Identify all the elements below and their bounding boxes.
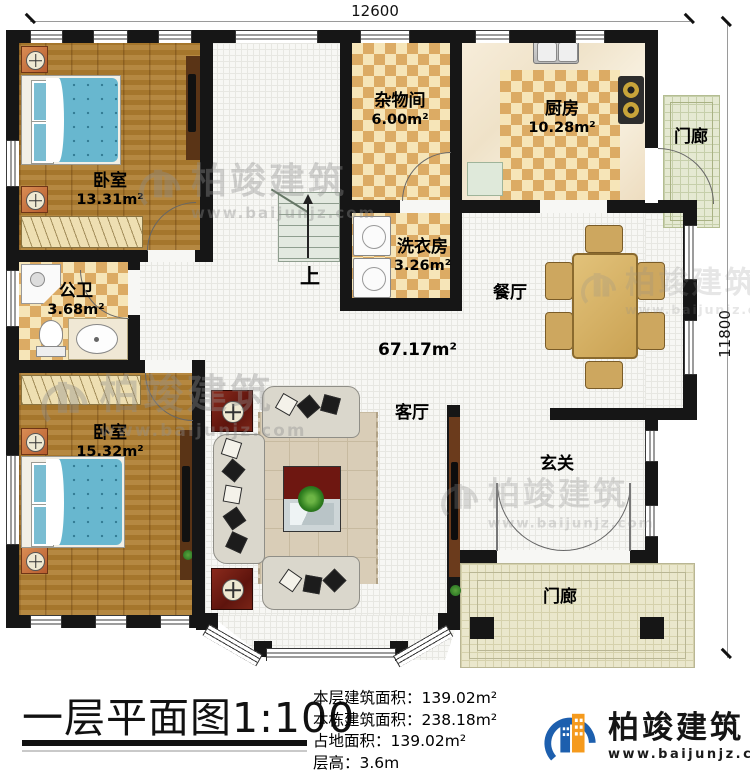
room-label-living: 客厅 [382,404,442,424]
dining-chair [545,262,573,300]
window [684,320,697,375]
sofa-pillow [303,575,323,595]
lamp-icon [26,191,45,210]
porch-column [470,617,494,639]
bed-duvet-fold [46,78,64,162]
room-label-storage: 杂物间 6.00m² [350,92,450,128]
door-leaf [629,483,631,551]
room-name: 洗衣房 [370,238,475,258]
room-name: 公卫 [30,282,122,302]
sofa-pillow [223,485,243,505]
toilet-tank [36,346,66,357]
room-area: 13.31m² [55,192,165,209]
wall [192,373,205,628]
door-opening [497,550,630,563]
window [6,140,19,187]
company-logo-icon [542,706,600,768]
lamp-icon [26,433,45,452]
company-name: 柏竣建筑 [608,713,750,744]
stairs-arrowhead-icon [303,194,313,204]
door-opening [145,360,192,373]
wardrobe [21,216,143,248]
kitchen-cabinet [467,162,503,196]
bay-window [266,648,396,661]
plant-icon [298,486,324,512]
info-line: 层高：3.6m [313,753,497,775]
plant-icon [450,585,461,596]
window [575,30,605,43]
plan-info: 本层建筑面积：139.02m² 本栋建筑面积：238.18m² 占地面积：139… [313,688,497,774]
burner-icon [623,82,639,98]
room-label-living-area: 67.17m² [370,341,465,361]
dining-chair [585,361,623,389]
room-label-bedroom-bottom: 卧室 15.32m² [55,424,165,460]
sink-basin [558,42,578,62]
plan-title: 一层平面图1:100 [22,684,355,744]
monitor [188,74,196,132]
room-name: 厨房 [512,100,612,120]
window [360,30,410,43]
dimension-label-right: 11800 [716,299,734,369]
wall [340,213,352,311]
company-url: www.baijunjz.com [608,747,750,762]
dimension-label-top: 12600 [330,2,420,20]
stairs-up-label: 上 [296,265,324,288]
dining-chair [585,225,623,253]
sink-basin [537,42,557,62]
room-label-dining: 餐厅 [480,284,540,304]
room-label-kitchen: 厨房 10.28m² [512,100,612,136]
info-line: 占地面积：139.02m² [313,731,497,753]
dimension-tick [25,13,36,24]
lamp-icon [26,552,45,571]
lamp-icon [222,579,244,601]
title-underline-thick [22,740,307,746]
lamp-icon [222,401,244,423]
end-table [211,568,253,610]
room-label-bathroom: 公卫 3.68m² [30,282,122,318]
door-opening [400,200,450,213]
floor-plan-page: 12600 11800 [0,0,750,780]
dimension-tick [684,13,695,24]
lamp-icon [26,51,45,70]
room-area: 15.32m² [55,444,165,461]
bed [21,456,125,548]
room-label-porch-top: 门廊 [660,128,722,148]
window [30,30,63,43]
title-underline-thin [22,750,307,752]
window [645,430,658,462]
room-name: 卧室 [55,172,165,192]
stairs-arrow [307,202,309,258]
bed [21,75,121,165]
room-area: 6.00m² [350,112,450,129]
dining-table [572,253,638,359]
toilet [39,320,63,348]
tv [182,466,190,542]
room-label-laundry: 洗衣房 3.26m² [370,238,475,274]
dining-chair [637,312,665,350]
company-logo: 柏竣建筑 www.baijunjz.com [542,706,750,768]
sink-drain-icon [94,337,99,342]
door-opening [540,200,607,213]
info-line: 本栋建筑面积：238.18m² [313,710,497,732]
room-area: 3.68m² [30,302,122,319]
dining-chair [637,262,665,300]
wall [200,30,213,262]
room-area: 3.26m² [370,258,475,275]
porch-bottom-floor [460,563,695,668]
nightstand [21,547,48,574]
window [6,270,19,327]
window [30,615,62,628]
window [684,225,697,280]
nightstand [21,428,48,455]
tv [451,462,458,540]
wardrobe [21,375,141,405]
room-name: 杂物间 [350,92,450,112]
door-opening [645,148,658,203]
porch-column [640,617,664,639]
wall [550,408,697,420]
window [158,30,192,43]
window [93,30,128,43]
room-label-foyer: 玄关 [522,455,592,475]
bed-duvet-fold [46,459,64,545]
end-table [211,390,253,432]
window [6,455,19,545]
wall [340,298,462,311]
door-leaf [496,483,498,551]
nightstand [21,46,48,73]
dimension-line-top [30,21,690,22]
room-area: 10.28m² [512,120,612,137]
window [160,615,190,628]
window [95,615,127,628]
room-label-bedroom-top: 卧室 13.31m² [55,172,165,208]
dining-bay-floor [645,213,683,408]
door-opening [148,250,195,262]
nightstand [21,186,48,213]
info-line: 本层建筑面积：139.02m² [313,688,497,710]
door-opening [128,270,140,315]
stove [618,76,644,124]
dining-chair [545,312,573,350]
window [645,505,658,537]
window [475,30,510,43]
burner-icon [623,102,639,118]
room-label-porch-bottom: 门廊 [520,588,600,608]
room-name: 卧室 [55,424,165,444]
window [235,30,318,43]
